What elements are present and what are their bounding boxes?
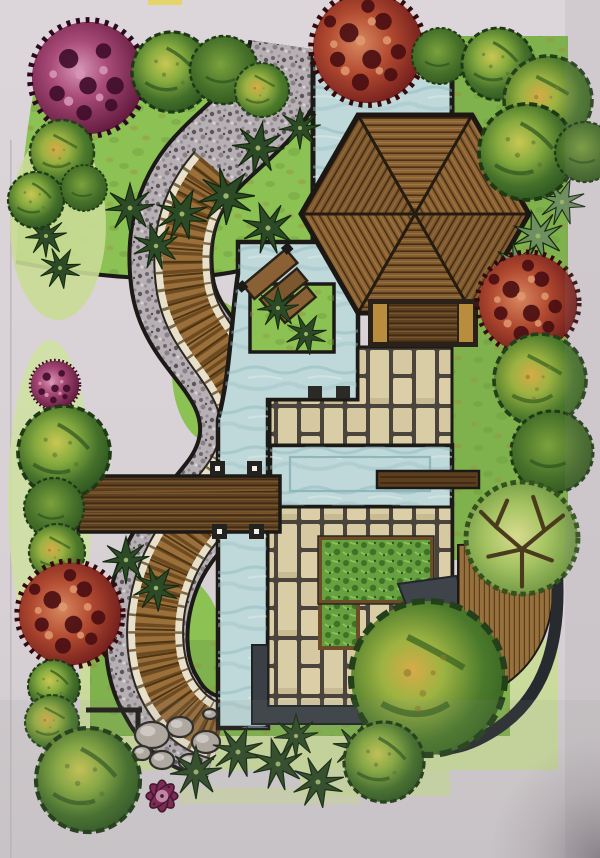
tree-leafy bbox=[466, 482, 578, 594]
pavilion-bench bbox=[368, 299, 478, 347]
tree-green-c bbox=[412, 28, 468, 84]
pavilion-center bbox=[412, 211, 418, 217]
tree-green-b bbox=[235, 63, 289, 117]
tree-green-c bbox=[61, 165, 107, 211]
tree-green-a bbox=[8, 172, 64, 228]
paper-yellow-mark bbox=[148, 0, 182, 5]
hedge-small bbox=[320, 602, 358, 648]
garden-plan-illustration: Hand-drawn marker rendering of a landsca… bbox=[0, 0, 600, 858]
water-plank-bridge bbox=[377, 471, 479, 488]
garden-plan-photo: Hand-drawn marker rendering of a landsca… bbox=[0, 0, 600, 858]
